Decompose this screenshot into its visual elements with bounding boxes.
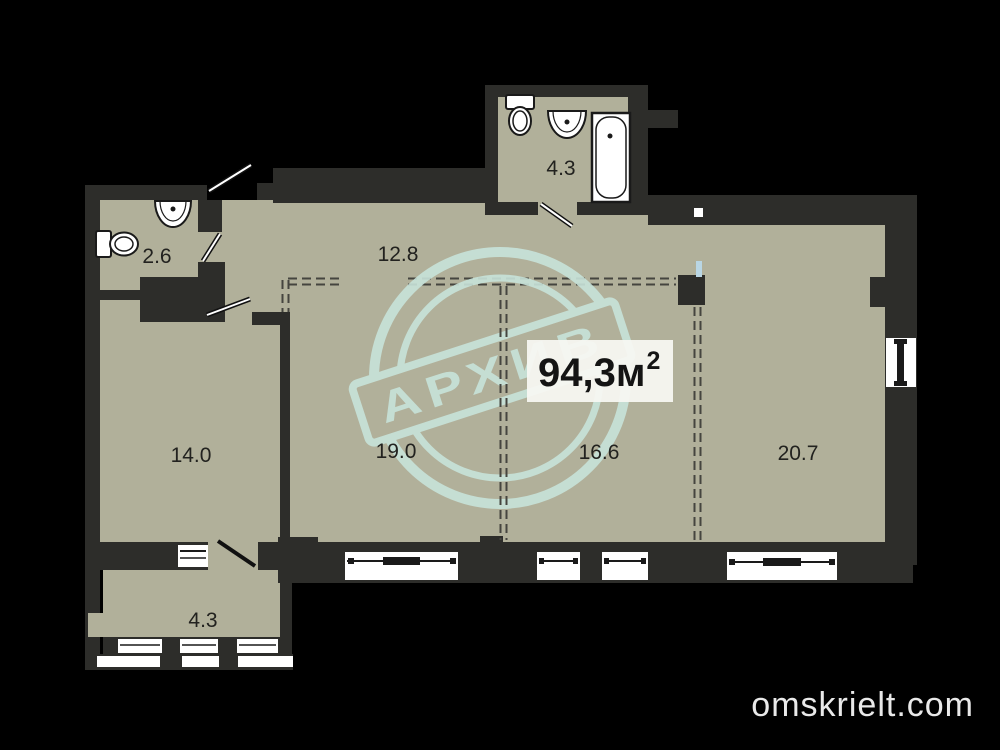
wall-top-band	[273, 168, 490, 203]
toilet-icon-wc	[96, 231, 138, 257]
window-room14-balcony	[178, 545, 208, 567]
entrance-door-leaf	[209, 165, 251, 191]
pillar-mid	[678, 275, 705, 305]
room-label-balcony: 4.3	[188, 609, 217, 632]
window-room19	[345, 552, 458, 580]
window-room16-a	[537, 552, 580, 580]
wall-wc-bottom	[85, 290, 140, 300]
wall-top-left	[85, 185, 207, 200]
room-label-room-left: 14.0	[171, 444, 212, 467]
bathtub-icon	[592, 113, 630, 202]
wall-room14-room19	[280, 312, 290, 543]
room-label-room-mid-left: 19.0	[376, 440, 417, 463]
balcony-window-outer	[97, 656, 293, 667]
total-area-box: 94,3м2	[527, 340, 673, 402]
balcony-left-wall-notch	[88, 613, 103, 637]
pillar-right-wall	[870, 277, 887, 307]
wall-notch-mark	[694, 208, 703, 217]
wall-bottom-left-block	[278, 537, 318, 583]
room-label-bathroom: 4.3	[546, 157, 575, 180]
room-label-wc: 2.6	[142, 245, 171, 268]
wall-stub-right-of-bath	[628, 110, 678, 128]
room-label-hallway: 12.8	[378, 243, 419, 266]
balcony-window-1	[118, 639, 162, 653]
wall-top-right	[648, 195, 887, 225]
balcony-door-gap	[208, 542, 258, 570]
wall-wc-right-upper	[198, 200, 222, 232]
glass-partition-mark	[696, 261, 702, 277]
floor-plan: АРХИВ 94,3м2 2.6 12.8 4.3 14.0 19.0 16.6…	[0, 0, 1000, 750]
room-label-room-right: 20.7	[778, 442, 819, 465]
wall-wc-right-lower	[198, 262, 225, 277]
floor-main-right	[648, 225, 885, 542]
floor-plan-screenshot: АРХИВ 94,3м2 2.6 12.8 4.3 14.0 19.0 16.6…	[0, 0, 1000, 750]
balcony-window-3	[237, 639, 278, 653]
total-area-text: 94,3м2	[538, 347, 660, 395]
window-room16-b	[602, 552, 648, 580]
toilet-icon-bathroom	[506, 95, 534, 135]
site-watermark: omskrielt.com	[751, 686, 974, 725]
room-label-room-mid-right: 16.6	[579, 441, 620, 464]
balcony-window-2	[180, 639, 218, 653]
